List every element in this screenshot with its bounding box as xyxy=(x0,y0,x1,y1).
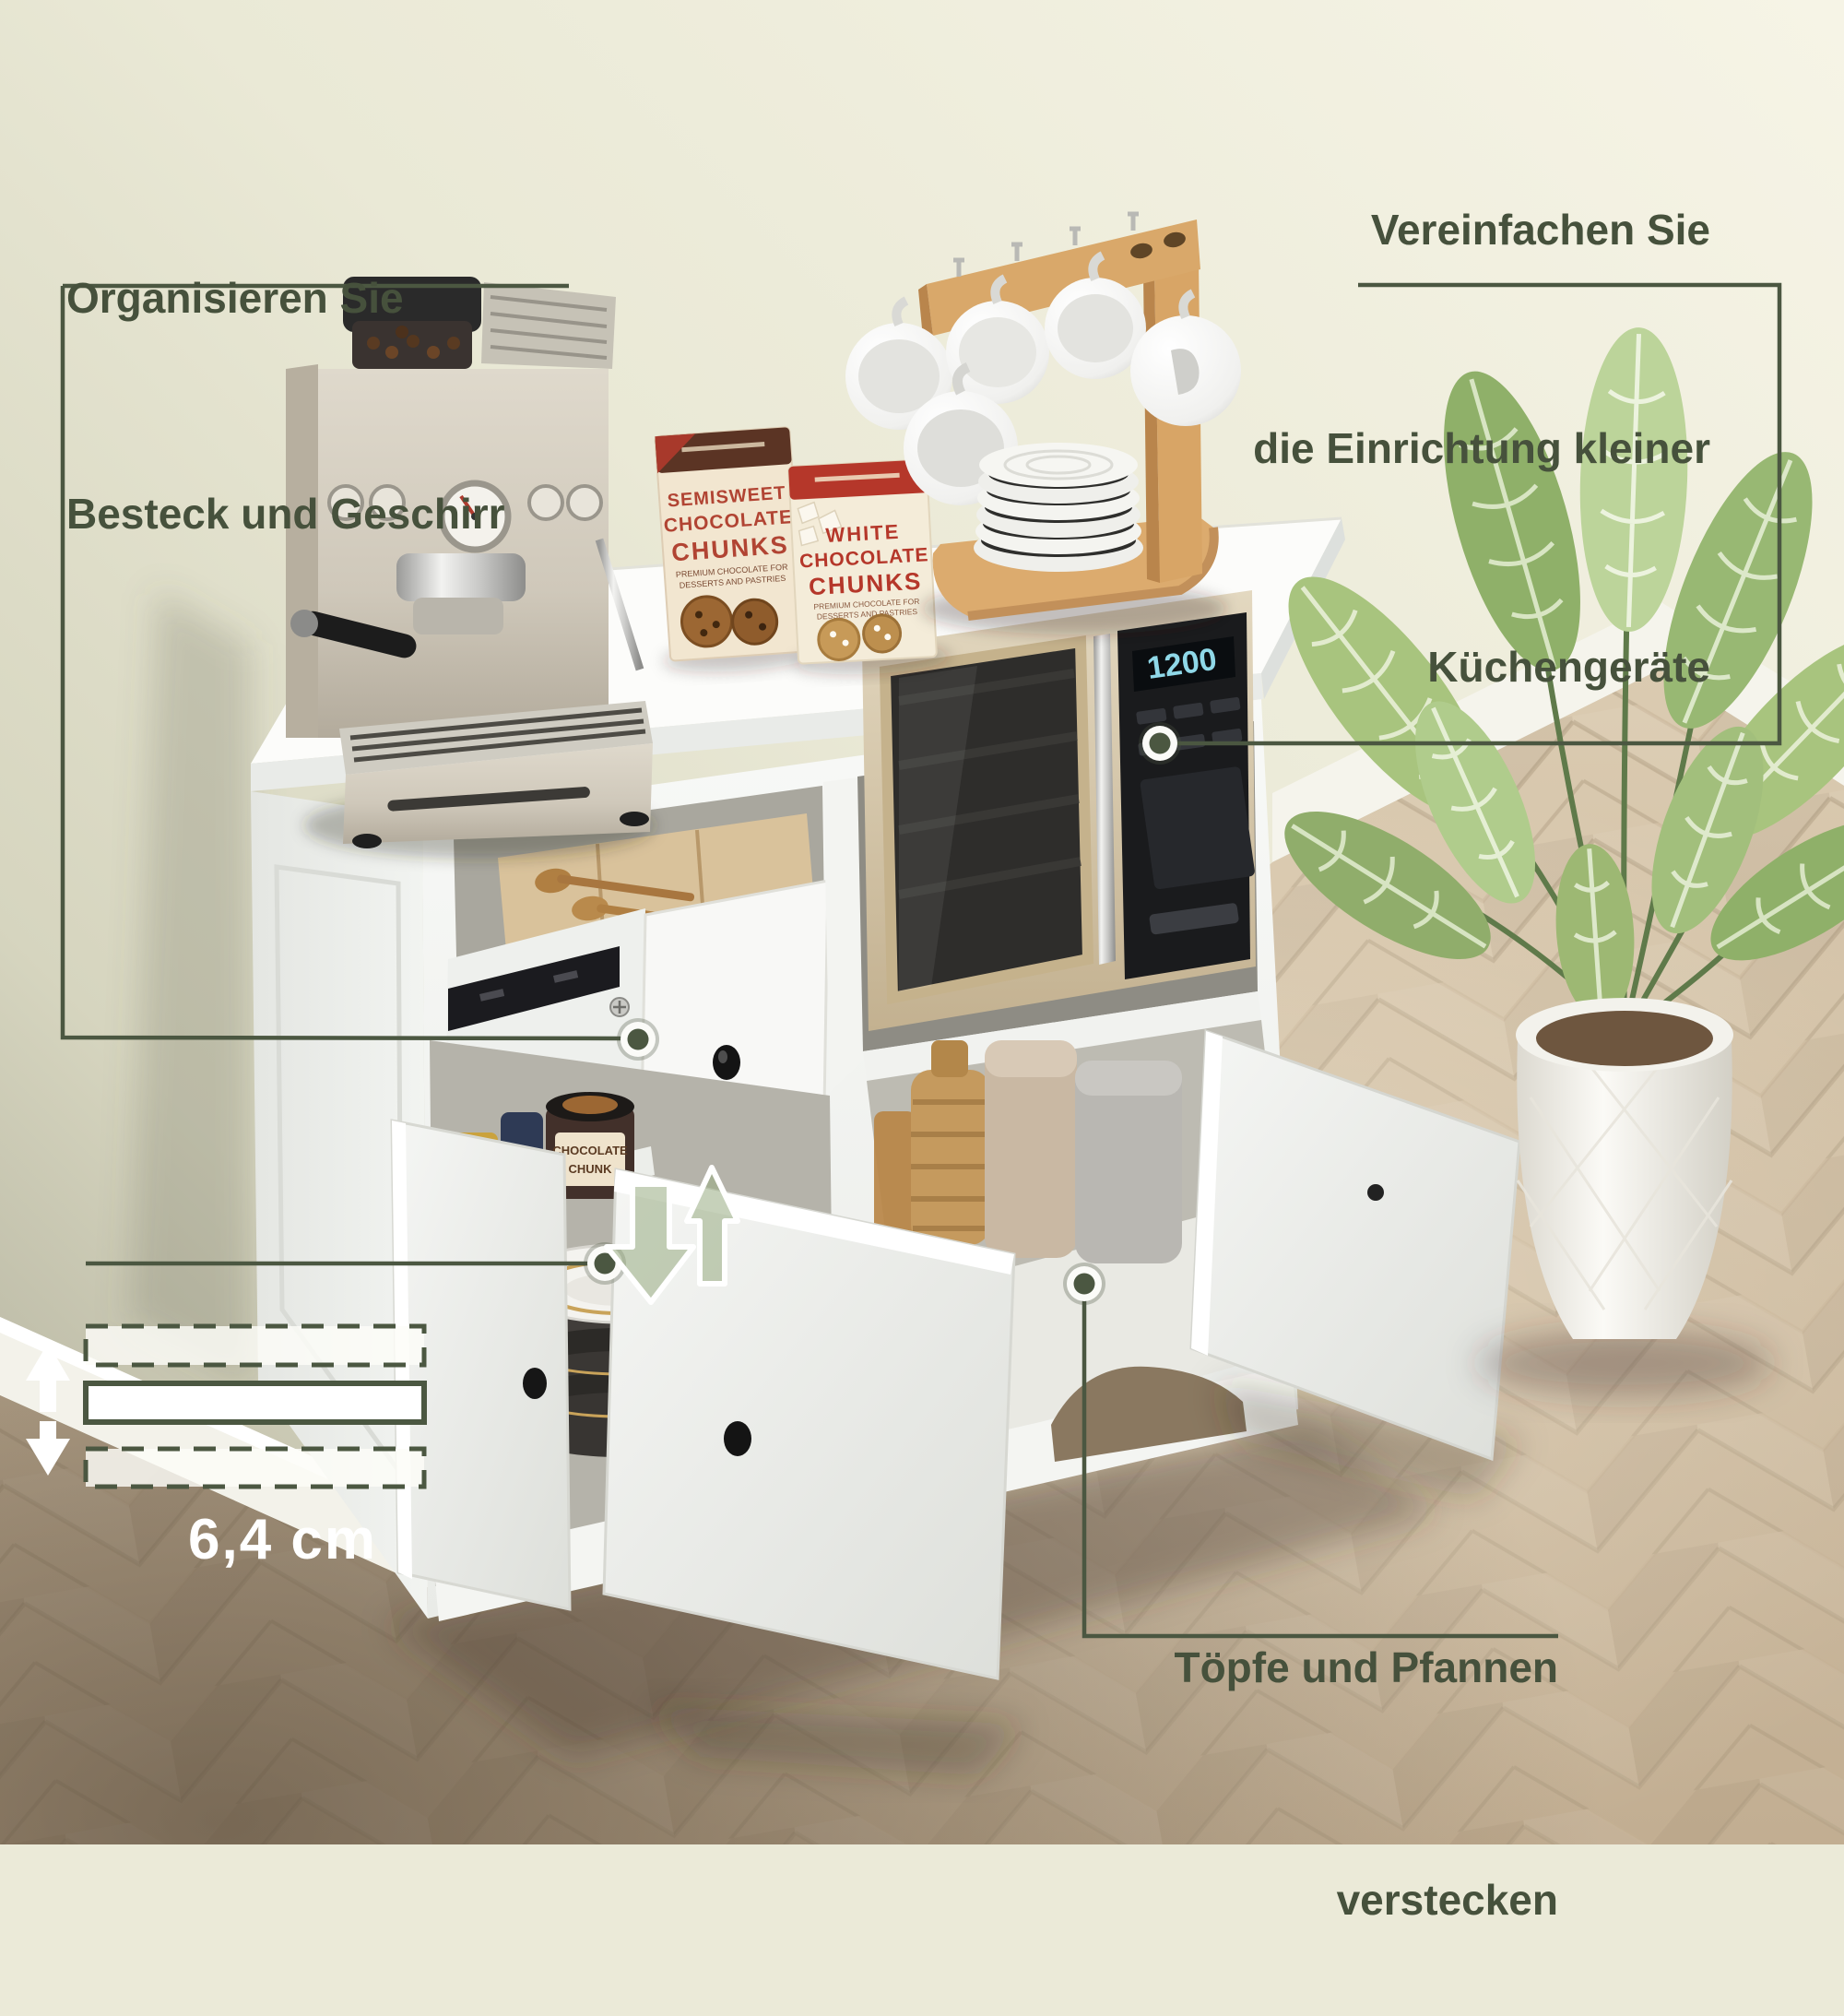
shelf-height-diagram xyxy=(26,1326,424,1487)
dashed-shelf-upper xyxy=(86,1326,424,1365)
label-top-right-line3: Küchengeräte xyxy=(1253,631,1710,704)
cookie-jar-label-2: CHUNK xyxy=(569,1162,613,1176)
callout-dot-bottom xyxy=(1063,1263,1105,1305)
plant-pot xyxy=(1516,998,1733,1339)
white-title-1: WHITE xyxy=(825,520,901,547)
pot-soil xyxy=(1536,1011,1713,1066)
saucer-stack xyxy=(974,443,1143,572)
right-door-knob-hole xyxy=(1367,1184,1384,1201)
label-top-right-line1: Vereinfachen Sie xyxy=(1253,194,1710,267)
measurement-label: 6,4 cm xyxy=(188,1507,377,1572)
callout-dot-drawer xyxy=(617,1018,659,1061)
callout-dot-microwave xyxy=(1139,722,1181,765)
middle-door-knob xyxy=(724,1421,751,1456)
label-bottom-right-line1: Töpfe und Pfannen xyxy=(1174,1629,1558,1706)
label-top-left-line2: Besteck und Geschirr xyxy=(66,478,505,550)
left-door-knob xyxy=(523,1368,547,1399)
label-top-right: Vereinfachen Sie die Einrichtung kleiner… xyxy=(1253,48,1710,777)
label-bottom-right-line2: verstecken xyxy=(1174,1861,1558,1939)
label-top-left-line1: Organisieren Sie xyxy=(66,262,505,334)
storage-containers xyxy=(874,1040,1182,1263)
solid-shelf xyxy=(86,1383,424,1422)
product-marketing-image: 1200 xyxy=(0,0,1844,1844)
drawer-knob xyxy=(713,1045,740,1080)
pot-shadow xyxy=(1477,1330,1772,1396)
label-bottom-right: Töpfe und Pfannen verstecken xyxy=(1174,1474,1558,2016)
label-top-left: Organisieren Sie Besteck und Geschirr xyxy=(66,118,505,622)
amber-jar xyxy=(874,1111,916,1240)
dashed-shelf-lower xyxy=(86,1449,424,1487)
label-top-right-line2: die Einrichtung kleiner xyxy=(1253,412,1710,485)
